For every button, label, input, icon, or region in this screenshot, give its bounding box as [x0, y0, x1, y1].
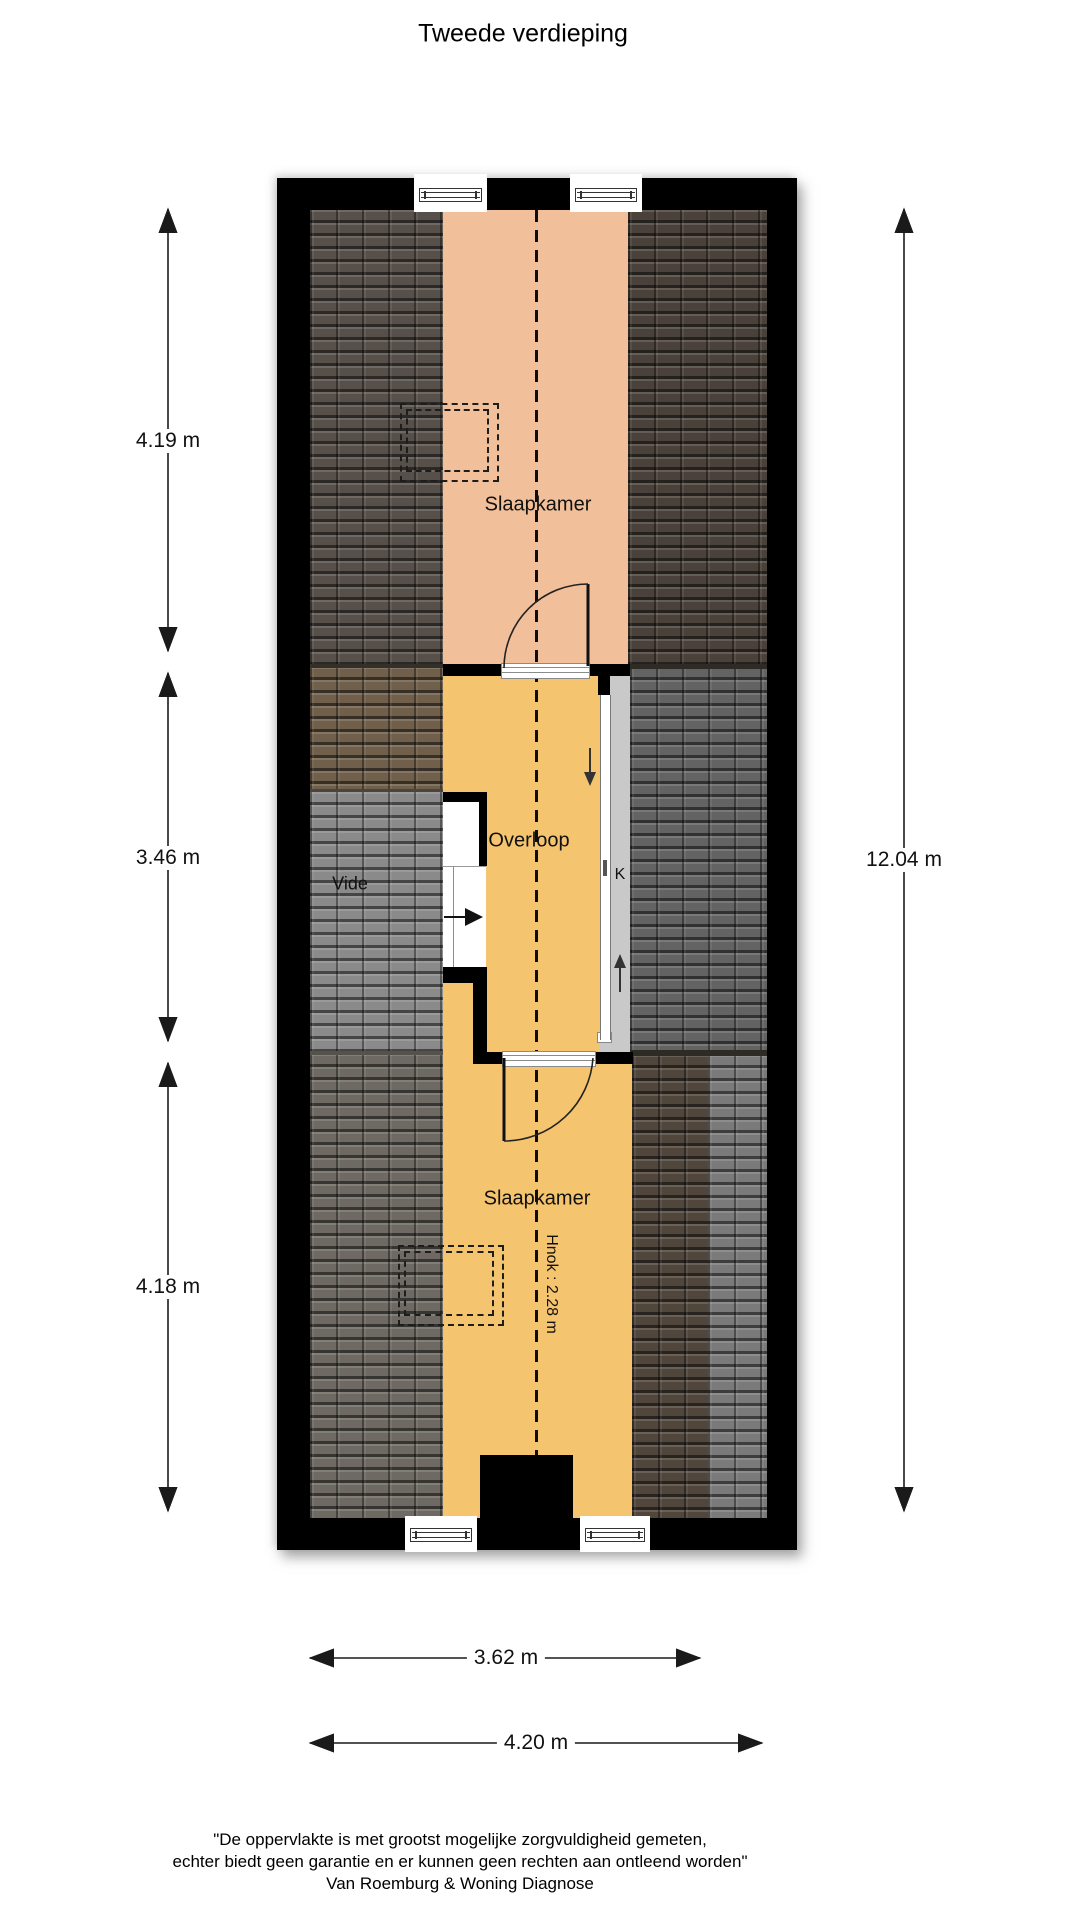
skylight-outline-top [400, 403, 499, 482]
window-bottom-left [405, 1516, 477, 1552]
window-top-right [570, 174, 642, 212]
room-bedroom-bottom-nook [443, 983, 473, 1068]
disclaimer-line2: echter biedt geen garantie en er kunnen … [60, 1851, 860, 1873]
closet-door-handle [603, 860, 607, 876]
label-landing: Overloop [488, 830, 569, 853]
window-symbol [419, 188, 482, 202]
roof-band-line [310, 664, 443, 668]
door-threshold-top [501, 663, 590, 679]
label-ridge-height: Hnok : 2.28 m [542, 1234, 560, 1334]
floorplan-page: Tweede verdieping [0, 0, 1080, 1920]
disclaimer-line1: "De oppervlakte is met grootst mogelijke… [60, 1829, 860, 1851]
dim-bottom-inner: 3.62 m [467, 1646, 545, 1670]
wall-closet-stub [598, 664, 610, 695]
stairs-step-line [453, 866, 454, 967]
window-symbol [410, 1528, 472, 1542]
roof-slope-bottom-right-strip [708, 1055, 767, 1518]
dim-bottom-outer: 4.20 m [497, 1731, 575, 1755]
roof-slope-bottom-right [632, 1055, 708, 1518]
roof-band-line [630, 664, 767, 669]
disclaimer: "De oppervlakte is met grootst mogelijke… [60, 1829, 860, 1895]
window-top-left [414, 174, 487, 212]
window-symbol [585, 1528, 645, 1542]
roof-slope-vide [310, 792, 443, 1054]
skylight-outline-bottom [398, 1245, 504, 1326]
disclaimer-line3: Van Roemburg & Woning Diagnose [60, 1873, 860, 1895]
stairs-lower-flight [443, 866, 486, 968]
wall-stairwell-side [473, 970, 487, 1064]
dim-left-top: 4.19 m [129, 429, 207, 453]
roof-slope-mid-right [630, 667, 767, 1055]
dim-left-middle: 3.46 m [129, 846, 207, 870]
dim-left-bottom: 4.18 m [129, 1275, 207, 1299]
label-closet-k: K [615, 866, 626, 884]
label-bedroom-bottom: Slaapkamer [484, 1188, 591, 1211]
window-bottom-right [580, 1516, 650, 1552]
stairs-upper-flight [443, 802, 479, 866]
window-symbol [575, 188, 637, 202]
roof-band-line [630, 1050, 767, 1056]
roof-slope-top-right [628, 210, 767, 667]
label-bedroom-top: Slaapkamer [485, 494, 592, 517]
skylight-outline-top-inner [406, 409, 489, 472]
roof-band-line [310, 789, 443, 792]
stairs-wall-right [479, 792, 487, 866]
page-title: Tweede verdieping [418, 20, 628, 49]
chimney-block [480, 1455, 573, 1518]
door-threshold-bottom [502, 1051, 596, 1067]
label-vide: Vide [332, 874, 368, 895]
roof-band-line [310, 1051, 443, 1055]
roof-slope-mid-left [310, 667, 443, 792]
dim-right-total: 12.04 m [859, 848, 949, 872]
skylight-outline-bottom-inner [404, 1251, 494, 1316]
